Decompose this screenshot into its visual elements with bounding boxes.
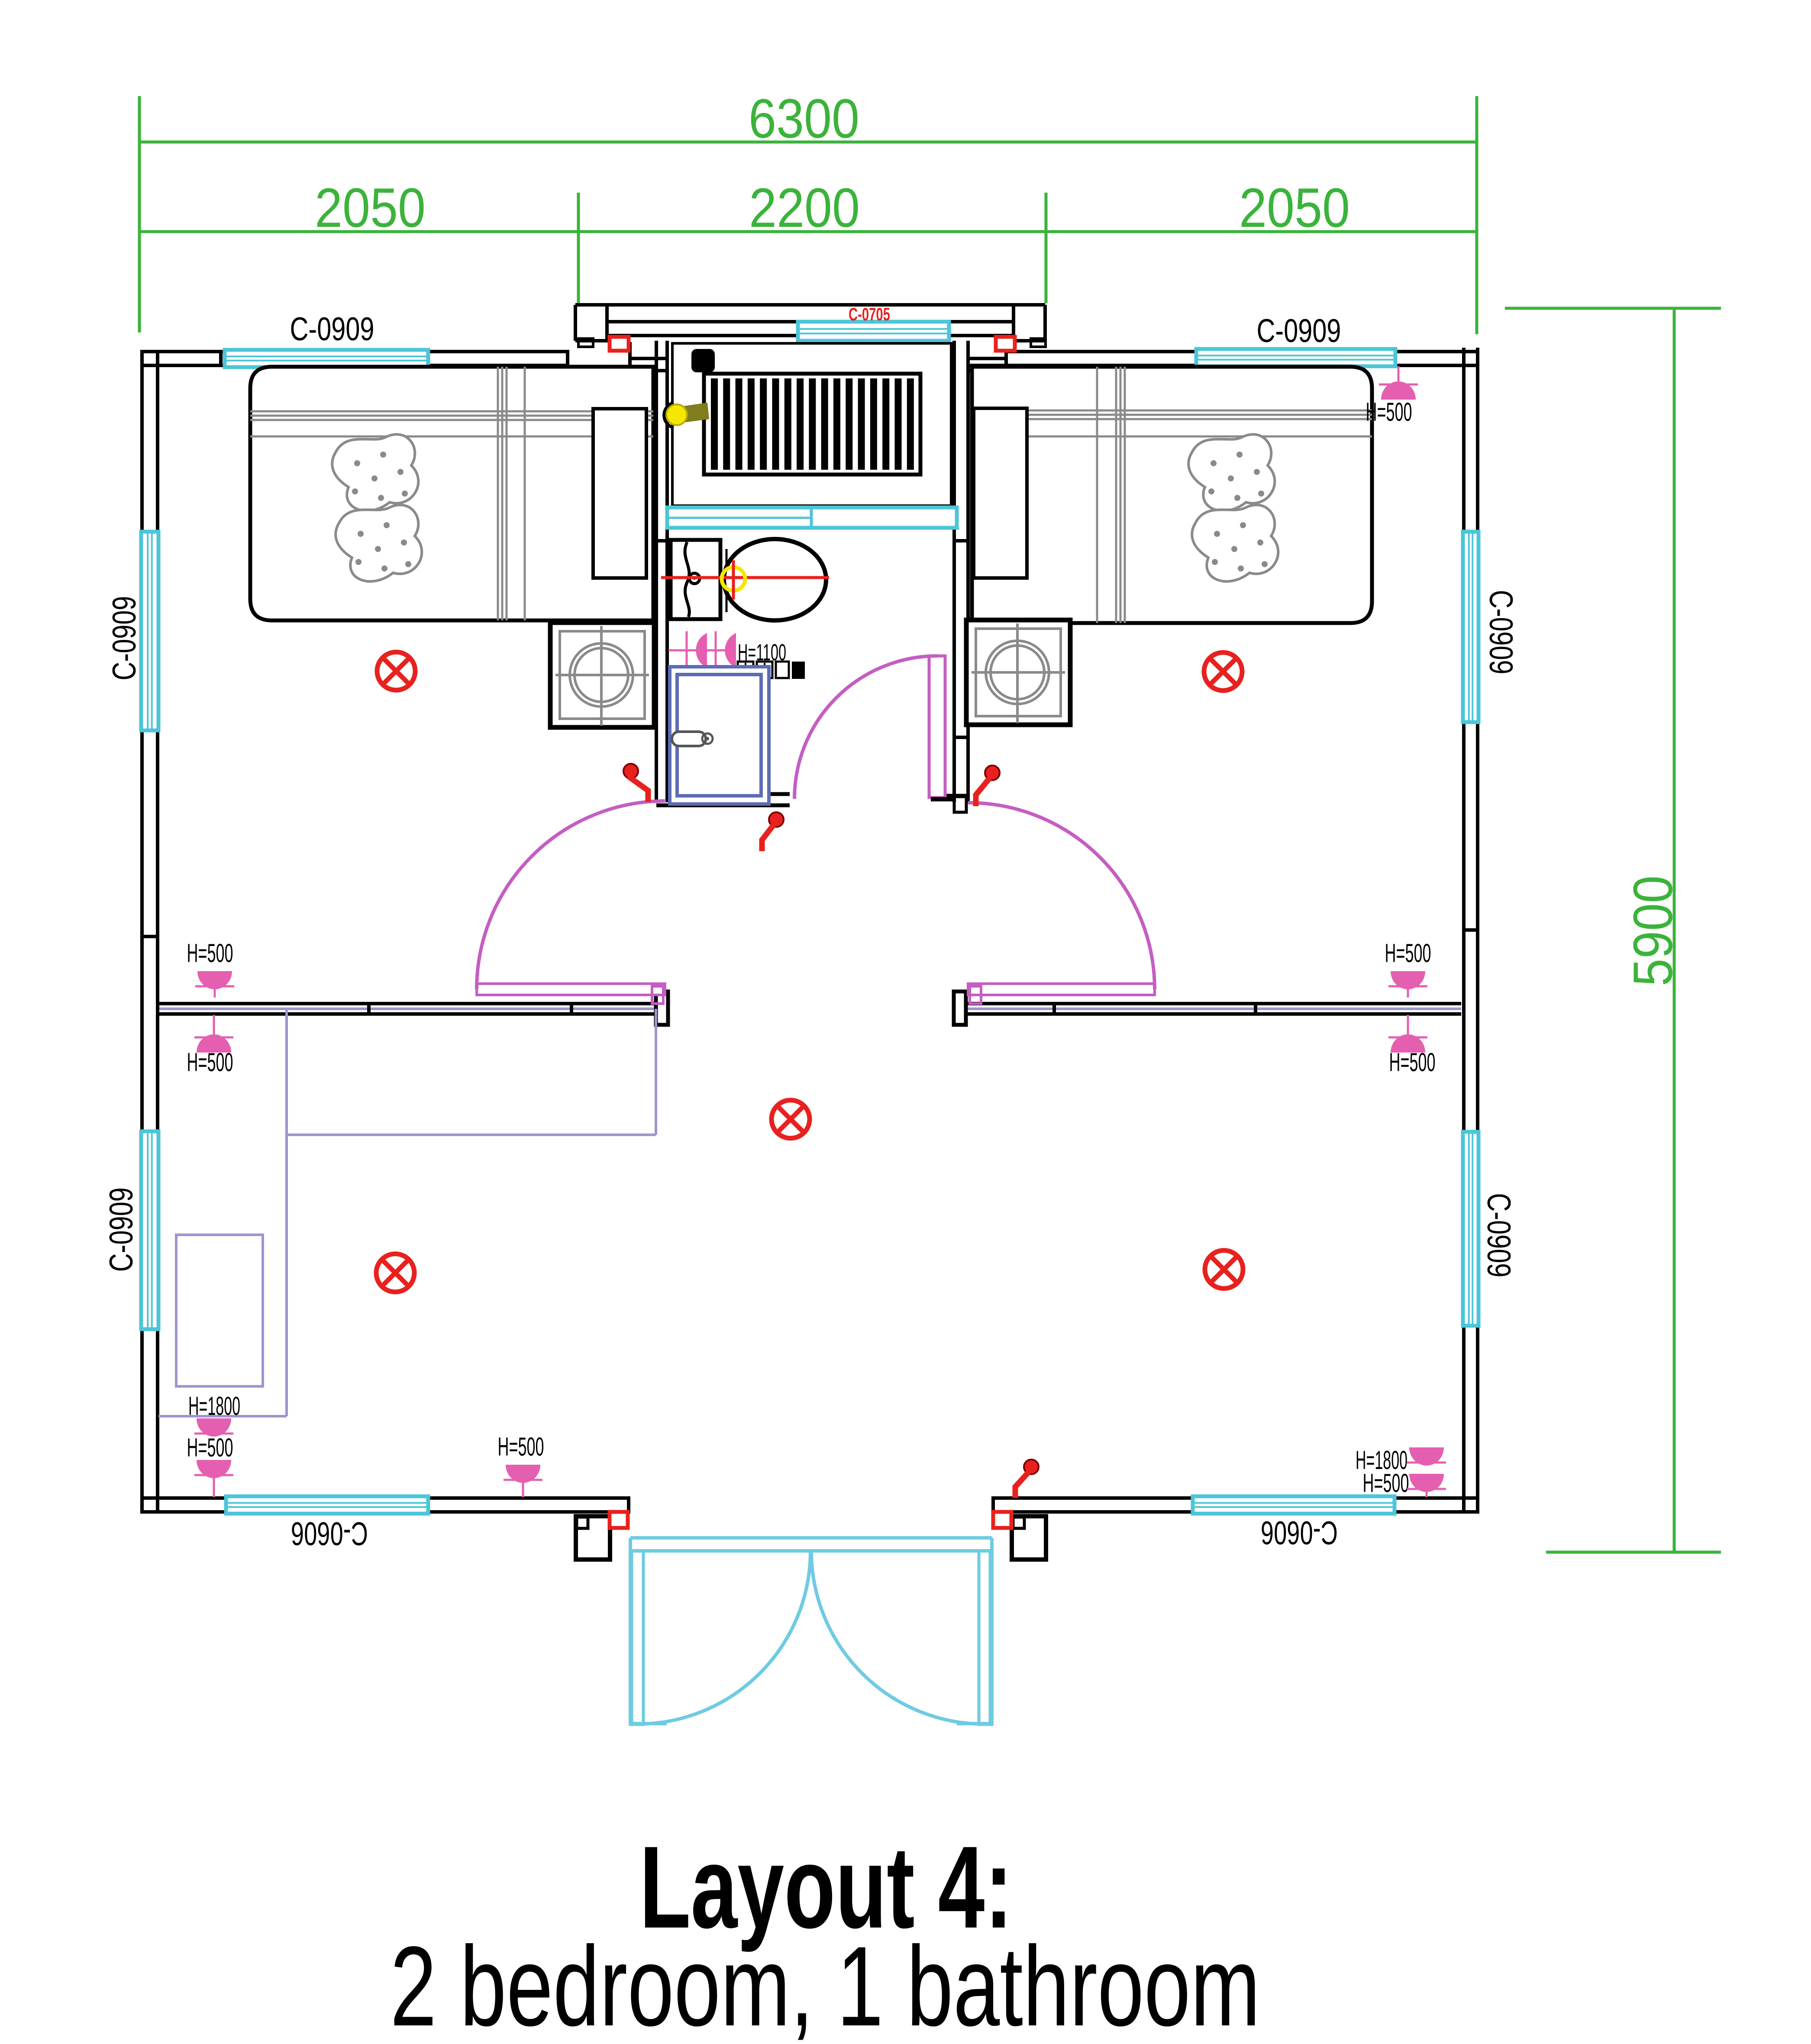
svg-text:H=500: H=500 (1385, 939, 1431, 968)
svg-text:C-0606: C-0606 (1261, 1514, 1338, 1551)
svg-text:H=1800: H=1800 (188, 1392, 240, 1421)
svg-text:C-0909: C-0909 (1480, 1193, 1517, 1278)
svg-text:5900: 5900 (1622, 875, 1684, 986)
svg-text:2050: 2050 (315, 177, 426, 239)
svg-text:H=500: H=500 (498, 1432, 544, 1461)
svg-text:H=500: H=500 (1363, 1469, 1409, 1498)
svg-text:H=500: H=500 (187, 939, 233, 968)
svg-text:C-0909: C-0909 (290, 311, 374, 348)
svg-text:2050: 2050 (1239, 177, 1350, 239)
svg-text:C-0909: C-0909 (1257, 313, 1341, 349)
svg-text:2200: 2200 (749, 177, 860, 239)
svg-text:H=500: H=500 (187, 1048, 233, 1077)
svg-text:C-0606: C-0606 (291, 1515, 368, 1552)
svg-text:H=500: H=500 (1389, 1048, 1436, 1077)
svg-text:C-0909: C-0909 (106, 596, 143, 681)
svg-text:2 bedroom, 1 bathroom: 2 bedroom, 1 bathroom (390, 1923, 1260, 2044)
svg-text:H=500: H=500 (187, 1433, 233, 1462)
svg-text:C-0705: C-0705 (849, 304, 890, 324)
svg-text:C-0909: C-0909 (103, 1188, 140, 1272)
svg-text:6300: 6300 (749, 88, 859, 150)
svg-text:H=500: H=500 (1366, 397, 1412, 426)
svg-text:C-0909: C-0909 (1482, 590, 1519, 675)
